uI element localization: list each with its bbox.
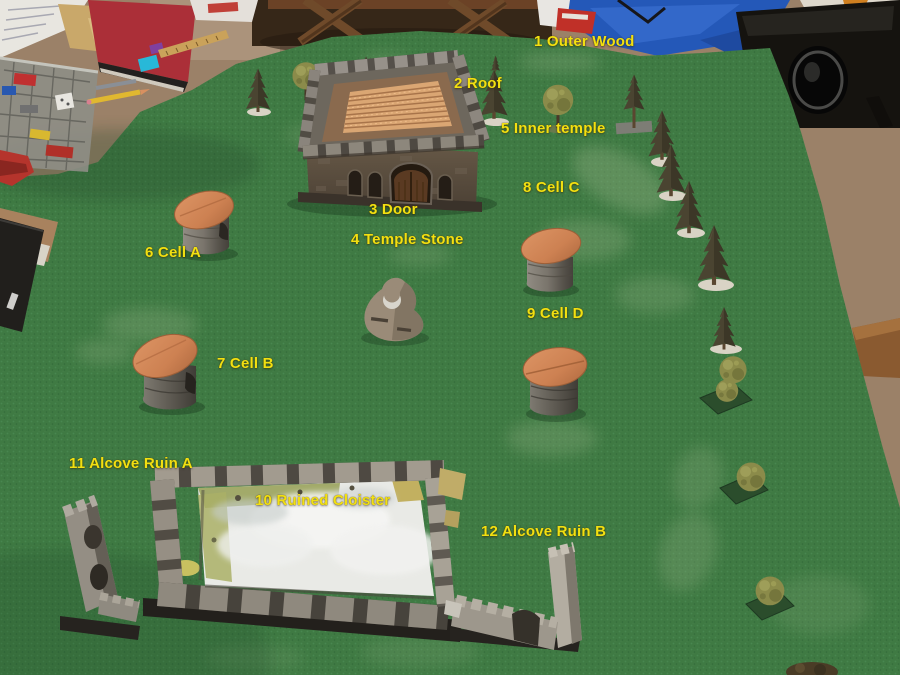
temple-building [287,56,497,217]
straw-clump-2 [444,510,460,528]
grey-token [20,105,38,113]
blue-token [2,86,16,95]
scene-photo [0,0,900,675]
red-token [13,73,36,86]
white-pink-stack [190,0,258,22]
white-die [55,93,74,111]
temple-roof [303,56,484,158]
annotated-tabletop-photo: 1 Outer Wood 2 Roof 3 Door 4 Temple Ston… [0,0,900,675]
temple-door [390,163,432,204]
